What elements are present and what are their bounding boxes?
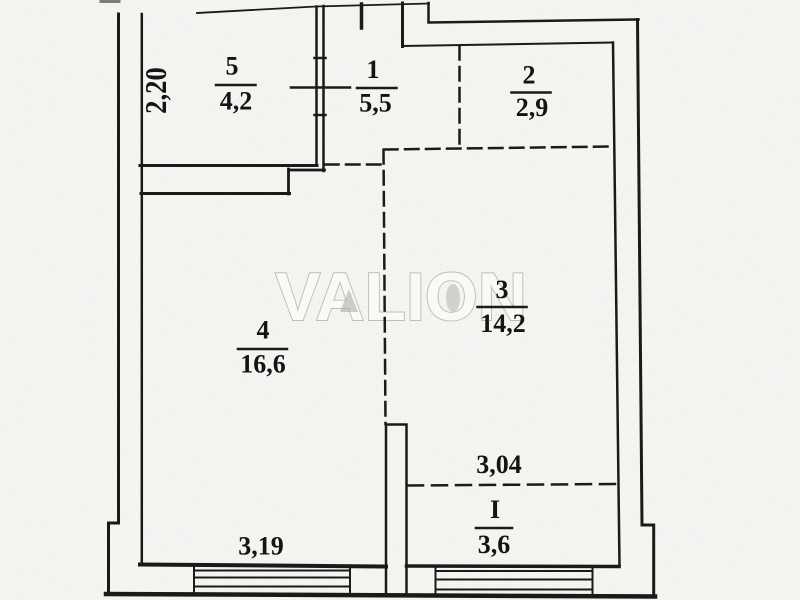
svg-text:3,6: 3,6 xyxy=(478,530,511,559)
svg-text:3: 3 xyxy=(496,275,509,304)
svg-text:5: 5 xyxy=(226,52,239,81)
svg-text:1: 1 xyxy=(367,55,380,84)
svg-text:4: 4 xyxy=(257,316,270,345)
svg-text:16,6: 16,6 xyxy=(240,350,286,379)
svg-text:4,2: 4,2 xyxy=(220,87,253,116)
svg-text:I: I xyxy=(490,495,500,524)
svg-text:2,20: 2,20 xyxy=(139,67,173,114)
svg-text:2: 2 xyxy=(523,61,536,90)
svg-text:3,19: 3,19 xyxy=(238,532,284,561)
svg-text:5,5: 5,5 xyxy=(359,89,392,118)
svg-text:14,2: 14,2 xyxy=(480,309,526,338)
svg-text:3,04: 3,04 xyxy=(476,450,522,479)
svg-text:2,9: 2,9 xyxy=(516,93,549,122)
